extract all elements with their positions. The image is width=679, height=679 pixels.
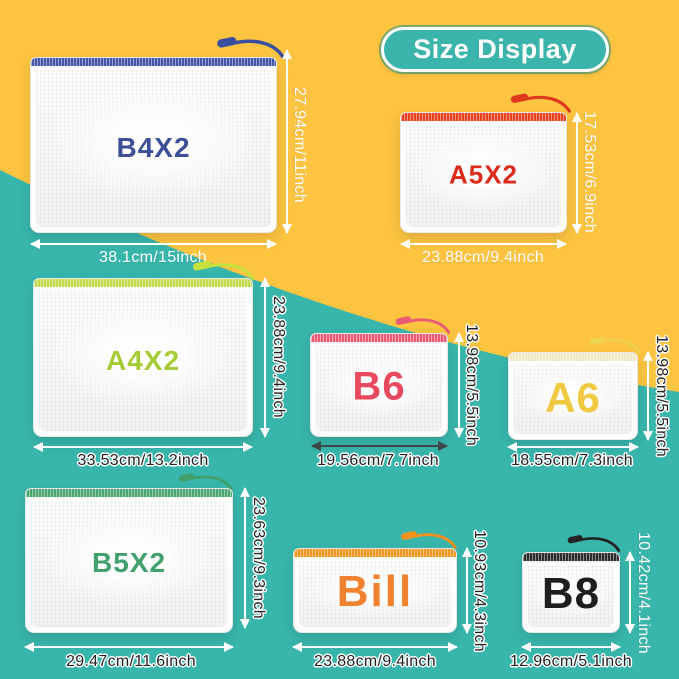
zipper-pull-icon [588,334,642,354]
pouch-size-label: B6 [352,365,405,410]
width-arrow-b8 [522,646,620,648]
zipper-pull-icon [566,532,622,553]
width-dim-b5x2: 29.47cm/11.6inch [66,653,196,671]
zipper-tape [34,279,252,289]
pouch-group-a5x2: A5X2 [400,112,567,233]
width-arrow-b5x2 [25,646,233,648]
pouch-size-label: A4X2 [106,345,180,377]
zipper-tape [523,553,619,563]
width-dim-b8: 12.96cm/5.1inch [510,653,632,671]
height-arrow-bill [466,548,468,633]
pouch-group-b8: B8 [522,552,620,633]
height-dim-bill: 10.93cm/4.3inch [470,530,488,652]
width-arrow-a4x2 [34,446,252,448]
width-dim-b6: 19.56cm/7.7inch [317,452,439,470]
pouch-size-label: Bill [337,567,413,617]
height-dim-a5x2: 17.53cm/6.9inch [580,111,598,233]
zipper-pull-icon [399,528,459,550]
width-dim-a4x2: 33.53cm/13.2inch [77,452,208,470]
width-dim-a6: 18.55cm/7.3inch [511,452,633,470]
height-arrow-b5x2 [244,488,246,628]
height-arrow-a5x2 [576,113,578,233]
zipper-pull-icon [394,313,452,335]
zipper-tape [294,549,456,559]
pouch-a4x2: A4X2 [33,278,253,437]
pouch-b5x2: B5X2 [25,488,233,633]
height-dim-a6: 13.98cm/5.5inch [652,335,670,457]
pouch-a6: A6 [508,352,638,440]
pouch-group-b6: B6 [310,333,448,437]
height-dim-a4x2: 23.88cm/9.4inch [269,296,287,418]
height-dim-b5x2: 23.63cm/9.3inch [249,497,267,619]
zipper-pull-icon [509,90,573,114]
pouch-b8: B8 [522,552,620,633]
size-display-infographic: Size Display B4X2 38.1cm/15inch 27.94cm/… [0,0,679,679]
height-arrow-a4x2 [264,278,266,437]
width-dim-a5x2: 23.88cm/9.4inch [422,249,544,267]
height-arrow-b4x2 [286,50,288,233]
pouch-size-label: B5X2 [92,547,166,579]
pouch-group-bill: Bill [293,548,457,633]
width-arrow-bill [293,646,457,648]
pouch-group-a4x2: A4X2 [33,278,253,437]
zipper-tape [31,58,276,68]
width-arrow-a6 [508,446,638,448]
title-banner: Size Display [381,27,609,72]
pouch-a5x2: A5X2 [400,112,567,233]
height-arrow-b8 [629,552,631,633]
width-arrow-b4x2 [31,243,276,245]
width-arrow-b6 [312,445,447,447]
pouch-size-label: A5X2 [449,159,518,190]
height-dim-b6: 13.98cm/5.5inch [462,324,480,446]
pouch-group-a6: A6 [508,352,638,440]
width-dim-bill: 23.88cm/9.4inch [314,653,436,671]
zipper-tape [311,334,447,344]
pouch-size-label: A6 [545,374,601,422]
width-arrow-a5x2 [401,243,566,245]
title-text: Size Display [413,34,577,65]
pouch-size-label: B8 [542,569,600,619]
height-arrow-a6 [647,352,649,440]
pouch-b4x2: B4X2 [30,57,277,233]
zipper-tape [401,113,566,123]
height-dim-b4x2: 27.94cm/11inch [290,87,308,203]
pouch-group-b4x2: B4X2 [30,57,277,233]
zipper-tape [509,353,637,363]
pouch-size-label: B4X2 [116,132,190,164]
pouch-bill: Bill [293,548,457,633]
zipper-tape [26,489,232,499]
height-arrow-b6 [458,333,460,437]
pouch-b6: B6 [310,333,448,437]
pouch-group-b5x2: B5X2 [25,488,233,633]
zipper-pull-icon [215,33,287,60]
height-dim-b8: 10.42cm/4.1inch [634,532,652,654]
